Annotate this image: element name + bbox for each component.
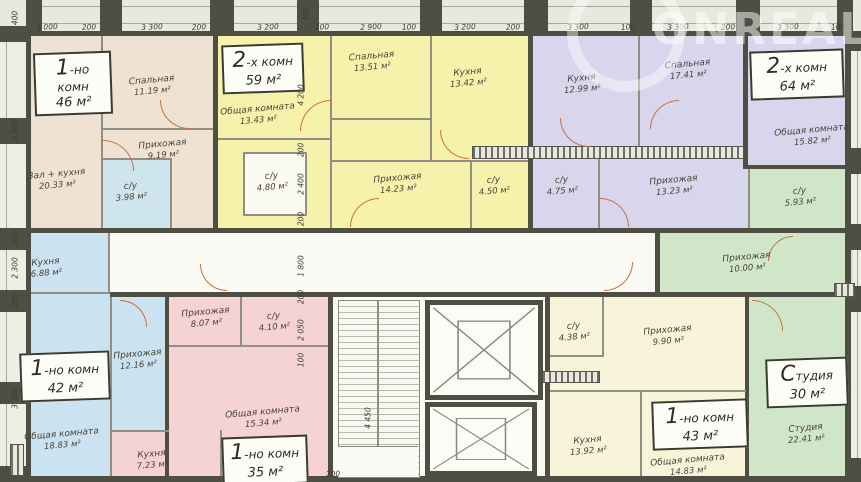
window-line — [857, 31, 858, 476]
apartment-type: 1-но комн — [657, 403, 742, 431]
dimension-label: 3 300 — [141, 22, 163, 32]
wall-hall-green — [655, 233, 660, 292]
apartment-type: 1-но комн — [39, 55, 106, 96]
partition — [550, 390, 746, 392]
dimension-label: 3 200 — [454, 22, 476, 32]
partition — [330, 36, 332, 228]
dimension-label: 100 — [297, 353, 306, 367]
room-label: Прихожая13.23 м² — [649, 173, 699, 198]
floor-plan: 1-но комн 46 м² 2-х комн 59 м² 2-х комн … — [0, 0, 861, 482]
dimension-label: 200 — [506, 22, 521, 32]
apartment-label-64: 2-х комн 64 м² — [749, 48, 845, 100]
watermark-text: ONREALT — [652, 4, 861, 55]
room-label: Кухня13.92 м² — [569, 434, 608, 458]
partition — [169, 345, 328, 347]
dimension-label: 1 800 — [297, 255, 306, 276]
partition — [330, 118, 430, 120]
room-label: Студия22.41 м² — [787, 422, 826, 446]
stair-landing — [338, 446, 418, 477]
room-label: Кухня13.42 м² — [449, 66, 488, 90]
wall-studio-su — [748, 165, 848, 169]
room-label: с/у3.98 м² — [114, 180, 147, 204]
wall-stair-apt43 — [545, 297, 550, 476]
apartment-area: 35 м² — [228, 464, 302, 482]
room-label: Спальная13.51 м² — [348, 50, 395, 75]
room-label: с/у4.50 м² — [477, 174, 510, 198]
dimension-label: 3 300 — [11, 387, 20, 408]
dimension-label: 200 — [82, 22, 97, 32]
apartment-area: 64 м² — [756, 77, 838, 95]
apartment-type: 2-х комн — [755, 53, 838, 81]
facade-column — [420, 0, 442, 31]
vent-hatch — [472, 146, 744, 159]
dimension-label: 200 — [326, 469, 341, 479]
room-label: Прихожая8.07 м² — [181, 305, 231, 330]
dimension-label: 4 450 — [364, 407, 373, 428]
dimension-label: 200 — [297, 143, 306, 157]
dimension-label: 2 400 — [297, 173, 306, 194]
dimension-label: 200 — [11, 230, 20, 244]
wall-apt59-64 — [528, 36, 533, 228]
partition — [101, 128, 213, 130]
facade-column — [0, 26, 26, 42]
apartment-area: 46 м² — [40, 93, 106, 110]
apartment-label-59: 2-х комн 59 м² — [221, 43, 305, 95]
facade-column — [100, 0, 122, 31]
wall-apt43-studio — [745, 297, 749, 476]
dimension-label: 2 300 — [11, 257, 20, 278]
facade-column — [524, 0, 548, 31]
dimension-label: 200 — [297, 212, 306, 226]
apartment-area: 42 м² — [26, 379, 104, 397]
room-label: Прихожая12.16 м² — [113, 347, 163, 372]
apartment-area: 43 м² — [658, 427, 742, 445]
apartment-label-30: Студия 30 м² — [765, 357, 849, 409]
dimension-label: 200 — [315, 22, 330, 32]
dimension-label: 200 — [297, 290, 306, 304]
apartment-type: 1-но комн — [25, 355, 104, 383]
vent-hatch — [10, 444, 24, 476]
wall-corridor-top — [31, 228, 853, 233]
partition — [602, 297, 604, 355]
dimension-label: 400 — [11, 11, 20, 25]
wall-apt46-59 — [213, 36, 218, 228]
window-line — [6, 26, 7, 482]
room-label: Прихожая14.23 м² — [373, 171, 423, 196]
room-label: с/у4.10 м² — [257, 310, 290, 334]
dimension-label: 2 050 — [297, 319, 306, 340]
room-label: Прихожая9.90 м² — [643, 323, 693, 348]
room-label: с/у4.75 м² — [545, 174, 578, 198]
partition — [218, 138, 330, 140]
partition — [470, 160, 472, 228]
dimension-label: 200 — [11, 293, 20, 307]
room-label: Спальная11.19 м² — [128, 74, 175, 99]
dimension-label: 400 — [302, 7, 311, 21]
wall-corridor-bottom — [110, 292, 853, 297]
apartment-label-42: 1-но комн 42 м² — [19, 350, 111, 402]
dimension-label: 200 — [192, 22, 207, 32]
partition — [108, 233, 110, 292]
wall-apt35-stair — [328, 297, 333, 476]
partition — [330, 160, 528, 162]
dimension-label: 2 900 — [360, 22, 382, 32]
partition — [640, 390, 642, 476]
room-label: Кухня6.88 м² — [29, 256, 62, 280]
elevator-shaft — [425, 300, 543, 400]
room-label: с/у5.93 м² — [783, 185, 816, 209]
partition — [110, 430, 169, 432]
apartment-area: 59 м² — [228, 72, 298, 89]
room-label: с/у4.80 м² — [255, 170, 288, 194]
partition — [31, 292, 110, 294]
apartment-type: 1-но комн — [227, 439, 302, 466]
dimension-label: 6 800 — [11, 119, 20, 140]
wall-outer-bottom — [26, 476, 853, 482]
apartment-type: Студия — [771, 361, 842, 388]
wall-outer-right — [845, 31, 851, 482]
dimension-label: 3 000 — [36, 22, 58, 32]
elevator-shaft — [425, 402, 537, 476]
facade-column — [210, 0, 234, 31]
room-label: Кухня7.23 м² — [135, 448, 168, 472]
apartment-label-43: 1-но комн 43 м² — [651, 398, 749, 450]
room-label: Прихожая10.00 м² — [722, 250, 772, 275]
room-label: с/у4.38 м² — [557, 320, 590, 344]
corridor-area — [110, 233, 655, 292]
dimension-label: 3 200 — [257, 22, 279, 32]
dimension-label: 4 200 — [297, 84, 306, 105]
apartment-label-46: 1-но комн 46 м² — [33, 51, 113, 116]
apartment-label-35: 1-но комн 35 м² — [221, 435, 309, 482]
partition — [240, 297, 242, 345]
room-label: Прихожая9.19 м² — [138, 137, 188, 162]
vent-hatch — [834, 283, 855, 297]
partition — [550, 355, 604, 357]
apartment-area: 30 м² — [772, 386, 842, 403]
partition — [430, 36, 432, 160]
wall-outer-left — [26, 31, 31, 482]
apartment-type: 2-х комн — [227, 47, 298, 74]
dimension-label: 100 — [402, 22, 417, 32]
